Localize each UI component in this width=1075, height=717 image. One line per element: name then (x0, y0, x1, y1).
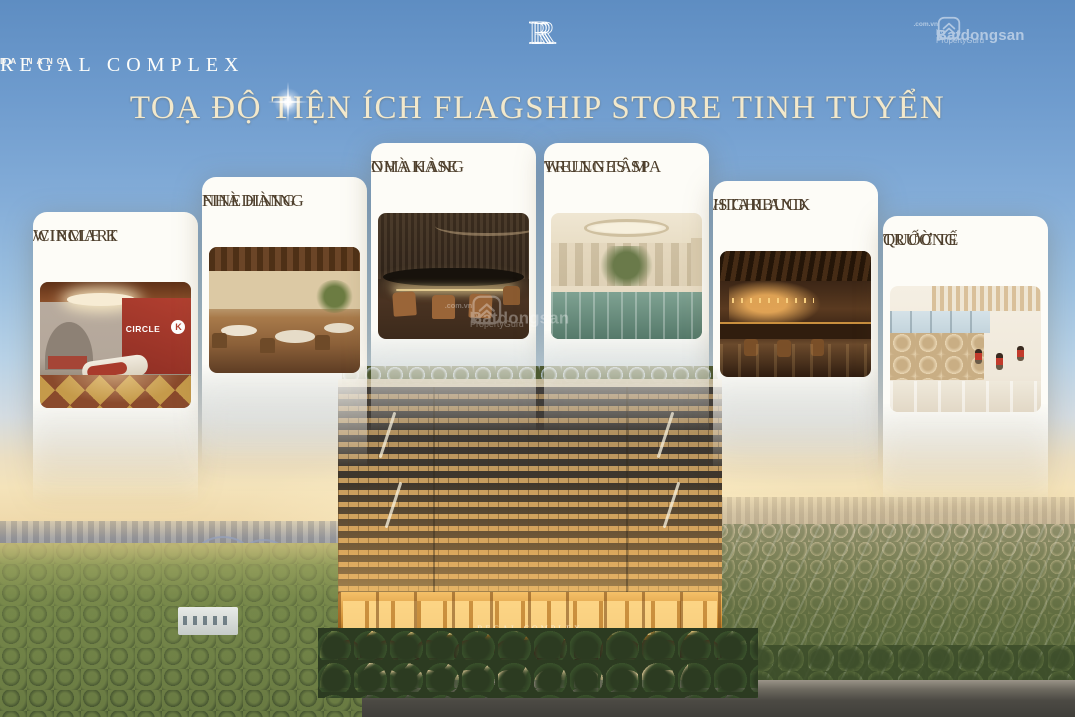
poster-canvas: REGAL COMPLEX RRR REGAL COMPLEX DA NANG … (0, 0, 1075, 717)
photo-greenery (315, 280, 354, 313)
logo-subtitle: DA NANG (0, 56, 67, 66)
circle-k-sign-text: CIRCLE (126, 324, 161, 334)
photo-wooden-cubbies (890, 333, 984, 381)
photo-chair (260, 338, 275, 353)
card-label-line2: WELLNES SPA (544, 156, 662, 179)
photo-indoor-pool (551, 292, 702, 339)
lens-flare-sparkle-icon (268, 82, 308, 122)
card-label-line2: /STARBUCK (713, 194, 811, 217)
page-title: TOẠ ĐỘ TIỆN ÍCH FLAGSHIP STORE TINH TUYỂ… (0, 90, 1075, 127)
photo-chair (503, 286, 520, 305)
photo-floor-reflection (720, 344, 871, 377)
card-label-line2: OMAKASE (371, 156, 458, 179)
amenity-card-finedining: NHÀ HÀNG FINEDINING (202, 177, 367, 477)
small-white-building (178, 607, 238, 635)
photo-child-figure (1017, 346, 1024, 361)
card-label-line2: /CIRCLE K (33, 225, 118, 248)
watermark-byline: by PropertyGuru (936, 29, 984, 46)
photo-backbar-lights (732, 298, 814, 303)
photo-counter-light (396, 289, 511, 291)
coffee-shop-photo (720, 251, 871, 377)
amenity-card-wellness-spa: TRUNG TÂM WELLNES SPA (544, 143, 709, 443)
photo-wood-ceiling (209, 247, 360, 271)
building-windows (183, 616, 233, 626)
svg-text:R: R (534, 15, 556, 51)
regal-monogram-icon: RRR (515, 12, 561, 52)
photo-glass-band (890, 311, 990, 332)
photo-chair (392, 292, 416, 317)
wellness-spa-photo (551, 213, 702, 339)
amenity-card-omakase: NHÀ HÀNG OMAKASE (371, 143, 536, 443)
amenity-card-highland-starbuck: HIGHLAND /STARBUCK (713, 181, 878, 481)
circle-k-store-photo: CIRCLE K (40, 282, 191, 408)
watermark-domain: .com.vn (913, 22, 938, 29)
photo-chair (212, 333, 227, 348)
circle-k-logo-icon: K (171, 320, 185, 334)
photo-ceiling-wave (435, 216, 529, 236)
amenity-card-winmart-circle-k: WINMART /CIRCLE K CIRCLE K (33, 212, 198, 512)
watermark-byline: by PropertyGuru (470, 311, 524, 330)
watermark-domain: .com.vn (445, 303, 473, 311)
photo-dining-table (324, 323, 354, 333)
sparkle-ray (268, 101, 308, 103)
street-tree-row (318, 628, 758, 698)
photo-olive-tree (596, 246, 656, 289)
fine-dining-photo (209, 247, 360, 373)
photo-checkered-floor (40, 375, 191, 408)
photo-ceiling-ring-light (584, 219, 669, 237)
photo-child-figure (975, 349, 982, 364)
school-corridor-photo (890, 286, 1041, 412)
card-label-line2: QUỐC TẾ (883, 229, 959, 252)
photo-sushi-counter (383, 268, 525, 286)
photo-red-counter (48, 356, 87, 369)
photo-wood-slat-ceiling (720, 251, 871, 281)
photo-glossy-floor (890, 381, 1041, 413)
photo-dining-table (275, 330, 314, 343)
photo-chair (315, 335, 330, 350)
photo-bar-counter (720, 322, 871, 340)
photo-child-figure (996, 353, 1003, 370)
card-label-line2: FINEDINING (202, 190, 304, 213)
amenity-card-international-school: TRƯỜNG QUỐC TẾ (883, 216, 1048, 516)
photo-ceiling-slats (932, 286, 1041, 311)
